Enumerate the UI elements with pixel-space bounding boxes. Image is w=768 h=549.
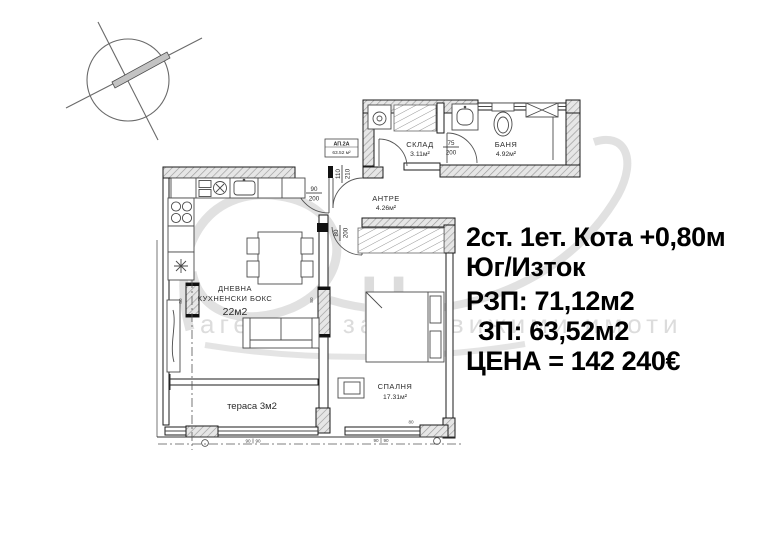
kitchen-cabinet	[168, 226, 194, 252]
label-terrace: тераса 3м2	[227, 401, 277, 412]
washing-machine-icon	[368, 105, 391, 129]
info-line-total-area: РЗП: 71,12м2	[466, 286, 725, 316]
wardrobe	[358, 228, 444, 253]
dim-col: 80	[309, 297, 314, 303]
bedroom-desk	[338, 378, 364, 398]
sink-icon	[452, 104, 478, 130]
kitchen-counter	[171, 178, 305, 198]
label-hallway: АНТРЕ	[372, 194, 400, 203]
apartment-area: 63.52 м²	[332, 150, 351, 156]
info-line-exposure: Юг/Изток	[466, 252, 725, 282]
dim-window: 90	[383, 438, 389, 443]
dim-bath-h: 200	[446, 150, 457, 157]
apartment-id: АП.2А	[333, 142, 349, 148]
north-compass	[66, 22, 202, 140]
dim-entry-h: 210	[345, 168, 352, 179]
label-living-2: КУХНЕНСКИ БОКС	[198, 294, 273, 303]
cooktop-icon	[168, 198, 194, 226]
info-line-net-area: ЗП: 63,52м2	[466, 316, 725, 346]
label-bathroom: БАНЯ	[495, 140, 518, 149]
dim-living-door: 90 200	[306, 186, 322, 203]
dim-window: 90	[255, 439, 261, 444]
info-line-type-floor: 2ст. 1ет. Кота +0,80м	[466, 222, 725, 252]
label-living-1: ДНЕВНА	[218, 284, 252, 293]
label-storage-area: 3.11м²	[410, 151, 430, 158]
storage-shelves	[394, 105, 436, 131]
dim-living-h: 200	[309, 196, 320, 203]
bed	[366, 292, 444, 362]
label-living-area: 22м2	[223, 306, 248, 318]
label-hallway-area: 4.26м²	[376, 205, 397, 212]
dim-entry-door: 110 210	[335, 165, 352, 183]
dim-window: 90	[245, 439, 251, 444]
compass-needle-icon	[112, 52, 170, 88]
fridge-icon	[168, 252, 194, 280]
label-bathroom-area: 4.92м²	[496, 151, 517, 158]
storage-door	[379, 139, 407, 166]
info-line-price: ЦЕНА = 142 240€	[466, 346, 725, 376]
label-bedroom: СПАЛНЯ	[378, 382, 413, 391]
bathroom-door	[447, 133, 477, 163]
shower-shelf-icon	[526, 103, 558, 160]
dim-bath-door: 75 200	[443, 140, 459, 157]
dim-bath-w: 75	[448, 140, 455, 147]
label-storage: СКЛАД	[406, 140, 434, 149]
floor-plan-page: Н агенция за недвижими имоти	[0, 0, 768, 549]
dim-living-w: 90	[311, 186, 318, 193]
dim-entry-w: 110	[335, 169, 342, 179]
dim-col: 80	[408, 420, 414, 425]
tv-unit	[167, 300, 180, 372]
entry-door	[333, 178, 363, 208]
apartment-tag: АП.2А 63.52 м²	[325, 139, 358, 157]
dim-bedroom-w: 80	[333, 229, 340, 236]
dim-bedroom-h: 200	[343, 227, 350, 238]
toilet-icon	[492, 103, 514, 136]
dining-table	[247, 232, 313, 284]
dim-window: 90	[373, 438, 379, 443]
sofa	[243, 318, 319, 348]
label-bedroom-area: 17.31м²	[383, 394, 408, 401]
dim-col: 80	[178, 298, 183, 304]
listing-info-panel: 2ст. 1ет. Кота +0,80м Юг/Изток РЗП: 71,1…	[466, 222, 725, 376]
